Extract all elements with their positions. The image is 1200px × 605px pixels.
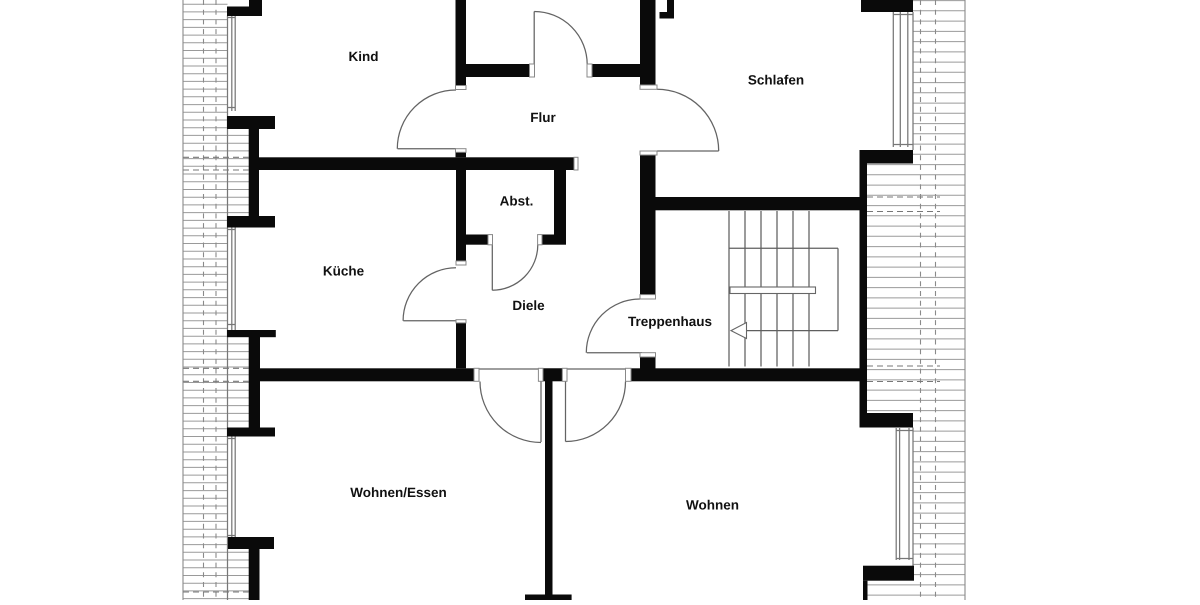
- svg-text:Kind: Kind: [349, 49, 379, 64]
- svg-text:Küche: Küche: [323, 264, 365, 279]
- svg-text:Diele: Diele: [512, 298, 545, 313]
- svg-text:Wohnen/Essen: Wohnen/Essen: [350, 485, 447, 500]
- svg-text:Wohnen: Wohnen: [686, 498, 739, 513]
- svg-text:Schlafen: Schlafen: [748, 73, 804, 88]
- svg-text:Abst.: Abst.: [500, 194, 534, 209]
- svg-text:Flur: Flur: [530, 110, 556, 125]
- svg-text:Treppenhaus: Treppenhaus: [628, 314, 712, 329]
